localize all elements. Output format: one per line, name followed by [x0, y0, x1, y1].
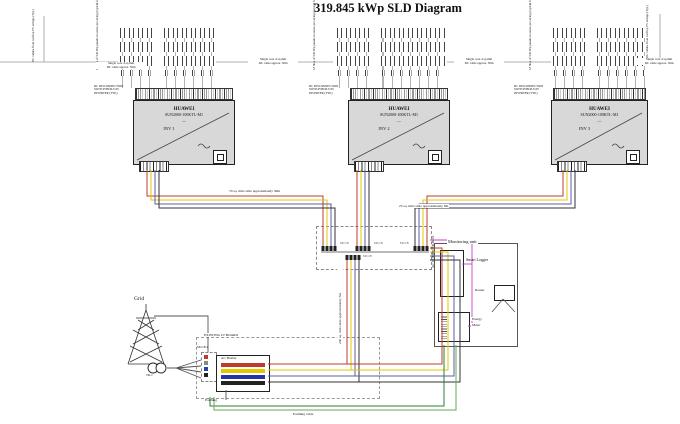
riser-bundle [268, 260, 359, 382]
cable-label-right: 25 sq. mm cable approximately 8m [398, 204, 449, 208]
meter-label-line1: Energy [471, 317, 483, 321]
grid-label: Grid [134, 296, 144, 302]
inverter-1-ac-bundle [147, 170, 335, 246]
sld-diagram-page: 319.845 kWp SLD Diagram [0, 0, 680, 424]
annotation-line: in series per string [95, 13, 99, 36]
annotation-line: (typical for all strings) [312, 0, 316, 13]
dc-route-label-3: Single core 4 sq.mm DC cable approx. 30m [454, 58, 504, 65]
grid-tower-icon [128, 304, 164, 364]
ac-busbar-label: AC Busbar [220, 356, 238, 360]
annotation-line: 18 Nos of 545 Wp panels [528, 38, 532, 70]
dc-route-lines [0, 14, 680, 62]
combiner-breaker-label-1: MCCB [340, 242, 349, 245]
meter-sense-lines [347, 248, 460, 382]
rs485-comm-lines [430, 240, 472, 326]
monitoring-unit-label: Monitoring unit [447, 239, 478, 244]
note-line: INVERTER (TYP.) [309, 92, 347, 95]
annotation-line: 18 Nos of 545 Wp panels [312, 38, 316, 70]
combiner-breaker-label-3: MCCB [400, 242, 409, 245]
dc-switch-note-3: DC DISCONNECTION SWITCH BUILT-IN INVERTE… [514, 85, 552, 95]
transformer-label: TR-1 [146, 374, 153, 378]
annotation-line: in series per string [528, 13, 532, 36]
cable-label-left: 70 sq. mm cable approximately 30m [228, 189, 281, 193]
dc-route-label-2: Single core 4 sq.mm DC cable approx. 30m [248, 58, 298, 65]
annotation-line: PV strings (Typ.) [645, 5, 649, 27]
edge-annotation-left: DC cables from rooftop PV strings (Typ.) [32, 14, 36, 62]
lt-board-label: EXISTING LT BOARD [203, 333, 239, 337]
earthing-loop [210, 345, 456, 410]
note-line: INVERTER (TYP.) [514, 92, 552, 95]
inverter-2-ac-bundle [357, 170, 369, 246]
edge-annotation-right: DC cables from rooftop PV strings (Typ.) [646, 8, 650, 58]
cable-label-earthing: Earthing cable [292, 412, 314, 416]
label-line: DC cable approx. 30m [637, 62, 680, 66]
string-annotation-3: 18 Nos of 545 Wp panels in series per st… [529, 12, 533, 70]
string-annotation-2: 18 Nos of 545 Wp panels in series per st… [313, 12, 317, 70]
inverter-diagonals [137, 113, 642, 160]
page-title: 319.845 kWp SLD Diagram [288, 1, 488, 15]
dc-switch-note-2: DC DISCONNECTION SWITCH BUILT-IN INVERTE… [309, 85, 347, 95]
combiner-outgoing-label: MCCB [363, 255, 372, 258]
dc-route-label-1: Single core 4 sq.mm DC cable approx. 30m [96, 62, 146, 69]
grid-feed-lines [154, 316, 226, 400]
label-line: DC cable approx. 30m [455, 62, 503, 66]
router-uplink-lines [492, 299, 515, 312]
breaker-ticks [204, 355, 208, 377]
dc-route-label-4: Single core 4 sq.mm DC cable approx. 30m [636, 58, 680, 65]
cable-label-riser: 240 sq. mm cable approximately 5m [337, 268, 343, 344]
earthing-label: Earthing [205, 398, 217, 402]
annotation-line: (typical for all strings) [95, 0, 99, 13]
router-label: Router [474, 288, 486, 292]
combiner-terminals [321, 246, 429, 260]
annotation-line: in series per string [312, 13, 316, 36]
note-line: INVERTER (TYP.) [94, 92, 132, 95]
annotation-line: PV strings (Typ.) [31, 9, 35, 31]
meter-label-line2: Meter [471, 323, 481, 327]
dc-switch-note-1: DC DISCONNECTION SWITCH BUILT-IN INVERTE… [94, 85, 132, 95]
grid-breaker-label: MCCB-1 [197, 346, 208, 349]
label-line: DC cable approx. 30m [97, 66, 145, 70]
transformer-symbol [156, 363, 166, 373]
annotation-line: DC cables from rooftop [645, 28, 649, 58]
smart-logger-label: Smart Logger [466, 258, 488, 263]
ac-combiner-label: AC COMBINER BOX [431, 228, 435, 268]
label-line: DC cable approx. 30m [249, 62, 297, 66]
annotation-line: DC cables from rooftop [31, 32, 35, 62]
combiner-breaker-label-2: MCCB [374, 242, 383, 245]
annotation-line: (typical for all strings) [528, 0, 532, 13]
